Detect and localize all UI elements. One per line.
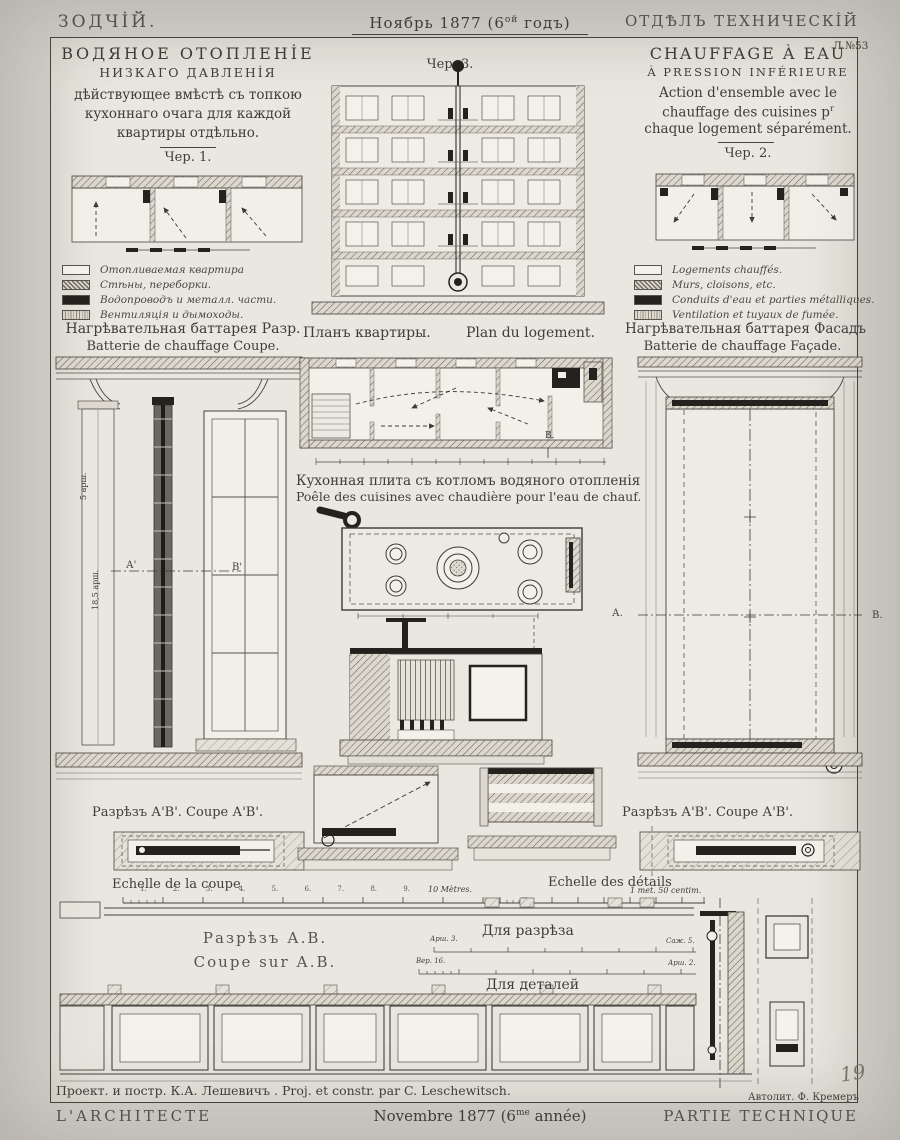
legend-item: Ventilation et tuyaux de fumée. <box>634 307 875 322</box>
legend-item: Отопливаемая квартира <box>62 262 276 277</box>
fig2-plan-drawing <box>652 164 858 258</box>
masthead-date-a: Ноябрь 1877 (6 <box>369 14 504 32</box>
masthead-date-sup: ой <box>505 15 518 25</box>
legend-label: Ventilation et tuyaux de fumée. <box>672 309 838 321</box>
lithographer-credit: Автолит. Ф. Кремеръ <box>748 1092 859 1103</box>
left-title-2: НИЗКАГО ДАВЛЕНİЯ <box>60 66 316 80</box>
legend-swatch-apartment <box>62 265 90 275</box>
legend-label: Conduits d'eau et parties métalliques. <box>672 294 875 306</box>
legend-item: Водопроводъ и металл. части. <box>62 292 276 307</box>
bottom-section-label-ru: Разрѣзъ А.В. <box>180 930 350 947</box>
legend-item: Logements chauffés. <box>634 262 875 277</box>
bottom-section-label-fr: Coupe sur А.В. <box>180 954 350 971</box>
detail-left-drawing <box>296 762 462 880</box>
stove-caption-fr: Poêle des cuisines avec chaudière pour l… <box>296 490 638 504</box>
legend-label: Murs, cloisons, etc. <box>672 279 776 291</box>
right-title-1: CHAUFFAGE À EAU <box>642 45 854 63</box>
plan-marker-b: В. <box>545 432 554 442</box>
footer-center-b: année) <box>530 1107 587 1125</box>
section-title: ОТДѢЛЪ ТЕХНИЧЕСКİЙ <box>625 13 857 30</box>
long-section-drawing <box>52 898 858 1088</box>
right-divider <box>718 142 774 143</box>
footer-left: L'ARCHITECTE <box>56 1108 212 1125</box>
right-section-caption: Разрѣзъ А'В'. Coupe А'В'. <box>622 806 793 820</box>
building-section-drawing <box>312 56 604 330</box>
credit-line: Проект. и постр. К.А. Лешевичъ . Proj. e… <box>56 1084 511 1098</box>
masthead-date: Ноябрь 1877 (6ой годъ) <box>345 15 595 32</box>
bottom-scale2-left-label: Вер. 16. <box>416 958 445 966</box>
left-divider <box>160 147 216 148</box>
left-title-1: ВОДЯНОЕ ОТОПЛЕНİЕ <box>60 45 316 63</box>
legend-item: Вентиляція и дымоходы. <box>62 307 276 322</box>
fig1-plan-drawing <box>66 166 310 260</box>
plan-caption-fr: Plan du logement. <box>466 326 595 341</box>
handwritten-page-number: 19 <box>839 1060 867 1085</box>
right-subtitle-1: Action d'ensemble avec le <box>642 86 854 101</box>
footer-center-a: Novembre 1877 (6 <box>373 1107 516 1125</box>
legend-swatch-walls <box>62 280 90 290</box>
battery-section-ab-left-drawing <box>112 824 308 880</box>
right-legend: Logements chauffés. Murs, cloisons, etc.… <box>634 262 875 322</box>
stove-caption-ru: Кухонная плита съ котломъ водяного отопл… <box>296 474 638 489</box>
left-section-caption: Разрѣзъ А'В'. Coupe А'В'. <box>92 806 263 820</box>
left-battery-caption-ru: Нагрѣвательная баттарея Разр. <box>52 322 314 337</box>
right-subtitle-2a: chauffage des cuisines p <box>662 105 830 121</box>
masthead-underline <box>352 34 588 35</box>
journal-title: ЗОДЧİЙ. <box>58 13 157 32</box>
legend-swatch-ventilation <box>634 310 662 320</box>
battery-section-ab-right-drawing <box>638 824 862 880</box>
left-dim-label-1: 5 арш. <box>80 472 89 500</box>
legend-label: Logements chauffés. <box>672 264 782 276</box>
right-subtitle-2: chauffage des cuisines pr <box>642 104 854 120</box>
left-battery-caption-fr: Batterie de chauffage Coupe. <box>52 340 314 354</box>
legend-swatch-pipes <box>62 295 90 305</box>
left-marker-b: В' <box>232 562 242 573</box>
legend-item: Стѣны, переборки. <box>62 277 276 292</box>
right-battery-caption-fr: Batterie de chauffage Façade. <box>625 340 860 354</box>
right-subtitle-2-sup: r <box>830 103 834 113</box>
footer-center: Novembre 1877 (6me année) <box>350 1108 610 1125</box>
bottom-scale1-left-label: Арш. 3. <box>430 936 458 944</box>
bottom-scale2-title: Для деталей <box>486 978 579 993</box>
apartment-plan-drawing <box>296 346 634 470</box>
legend-label: Отопливаемая квартира <box>100 264 244 276</box>
masthead-date-b: годъ) <box>518 14 570 32</box>
fig2-label: Чер. 2. <box>642 147 854 161</box>
legend-item: Conduits d'eau et parties métalliques. <box>634 292 875 307</box>
stove-section-drawing <box>338 618 582 770</box>
right-battery-caption-ru: Нагрѣвательная баттарея Фасадъ <box>625 322 860 337</box>
legend-item: Murs, cloisons, etc. <box>634 277 875 292</box>
detail-right-drawing <box>462 762 622 880</box>
legend-swatch-conduits <box>634 295 662 305</box>
left-legend: Отопливаемая квартира Стѣны, переборки. … <box>62 262 276 322</box>
left-dim-label-2: 18,5 арш. <box>92 570 101 610</box>
stove-plan-drawing <box>308 504 598 622</box>
legend-label: Водопроводъ и металл. части. <box>100 294 276 306</box>
footer-right: PARTIE TECHNIQUE <box>660 1108 858 1125</box>
right-subtitle-3: chaque logement séparément. <box>642 122 854 137</box>
battery-facade-drawing <box>638 357 862 805</box>
left-subtitle-2: кухоннаго очага для каждой <box>60 107 316 122</box>
plan-caption-ru: Планъ квартиры. <box>303 326 431 341</box>
left-subtitle-1: дѣйствующее вмѣстѣ съ топкою <box>60 88 316 103</box>
right-marker-b: В. <box>872 610 883 621</box>
fig1-label: Чер. 1. <box>60 151 316 165</box>
legend-label: Стѣны, переборки. <box>100 279 211 291</box>
legend-label: Вентиляція и дымоходы. <box>100 309 243 321</box>
footer-center-sup: me <box>516 1108 530 1118</box>
left-marker-a: А' <box>126 560 136 571</box>
left-subtitle-3: квартиры отдѣльно. <box>60 126 316 141</box>
legend-swatch-vents <box>62 310 90 320</box>
lithograph-plate-page: ЗОДЧİЙ. Ноябрь 1877 (6ой годъ) ОТДѢЛЪ ТЕ… <box>0 0 900 1140</box>
right-title-2: À PRESSION INFÉRIEURE <box>642 66 854 79</box>
bottom-scale1-title: Для разрѣза <box>482 924 574 939</box>
legend-swatch-murs <box>634 280 662 290</box>
right-marker-a: А. <box>612 608 623 619</box>
legend-swatch-logements <box>634 265 662 275</box>
bottom-scale1-bar <box>430 944 700 956</box>
